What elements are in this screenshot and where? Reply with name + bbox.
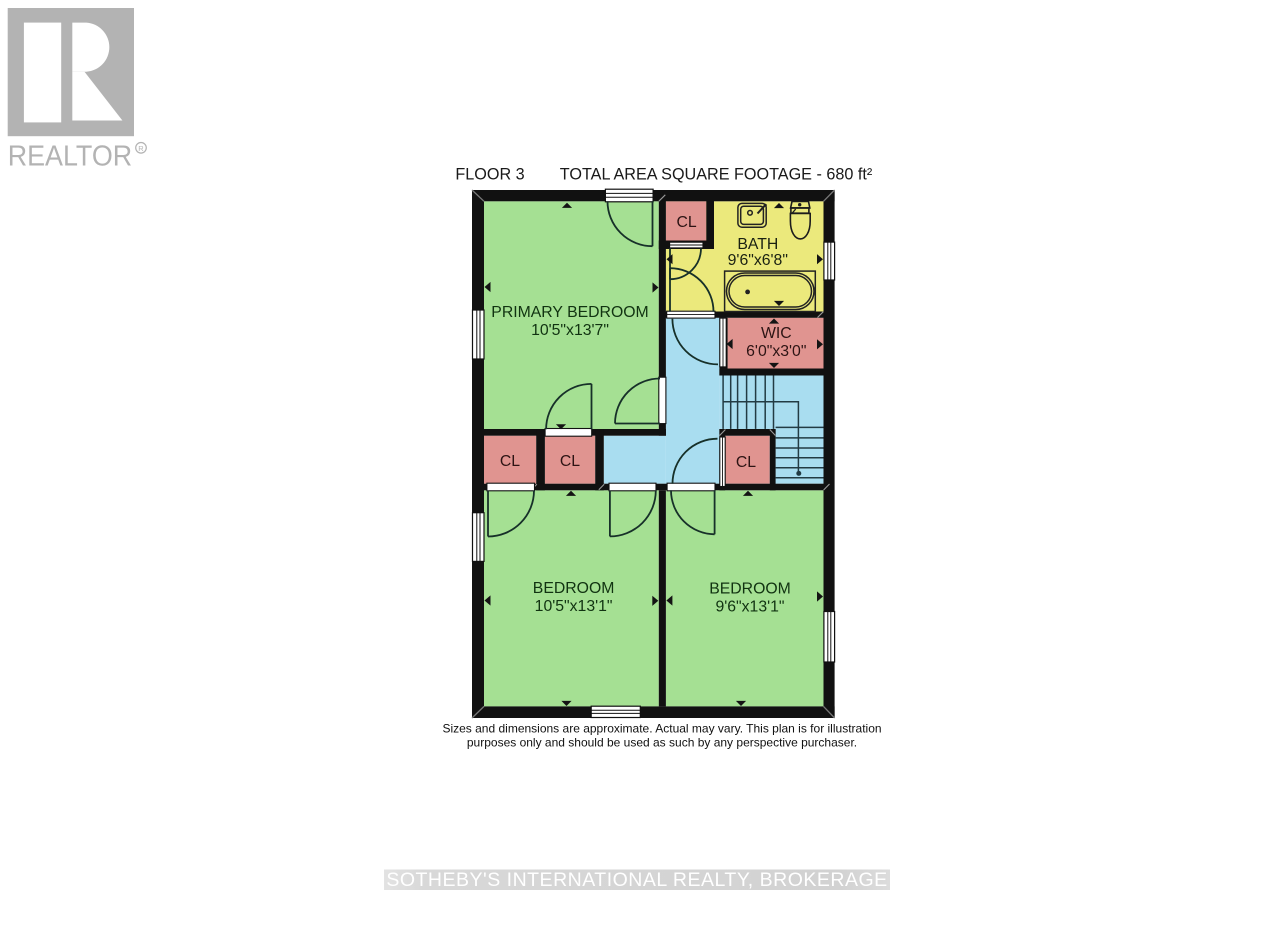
svg-text:BATH: BATH bbox=[737, 236, 778, 253]
svg-text:REALTOR: REALTOR bbox=[8, 140, 133, 172]
svg-text:Sizes and dimensions are appro: Sizes and dimensions are approximate. Ac… bbox=[442, 722, 881, 736]
svg-text:CL: CL bbox=[560, 453, 580, 470]
svg-text:9'6"x6'8": 9'6"x6'8" bbox=[728, 252, 788, 269]
svg-text:purposes only and should be us: purposes only and should be used as such… bbox=[467, 735, 857, 749]
svg-text:6'0"x3'0": 6'0"x3'0" bbox=[746, 343, 806, 360]
svg-text:PRIMARY BEDROOM: PRIMARY BEDROOM bbox=[491, 304, 648, 321]
svg-text:WIC: WIC bbox=[761, 325, 792, 342]
svg-text:10'5"x13'7": 10'5"x13'7" bbox=[531, 322, 609, 339]
svg-text:9'6"x13'1": 9'6"x13'1" bbox=[715, 599, 784, 616]
svg-text:SOTHEBY'S INTERNATIONAL REALTY: SOTHEBY'S INTERNATIONAL REALTY, BROKERAG… bbox=[386, 869, 887, 891]
svg-text:10'5"x13'1": 10'5"x13'1" bbox=[535, 598, 613, 615]
svg-text:BEDROOM: BEDROOM bbox=[533, 580, 615, 597]
svg-text:R: R bbox=[138, 144, 144, 153]
svg-text:BEDROOM: BEDROOM bbox=[709, 581, 791, 598]
svg-text:CL: CL bbox=[736, 454, 756, 471]
svg-text:CL: CL bbox=[676, 214, 696, 231]
svg-text:FLOOR 3: FLOOR 3 bbox=[455, 165, 524, 183]
svg-text:CL: CL bbox=[500, 453, 520, 470]
svg-text:TOTAL AREA SQUARE FOOTAGE - 68: TOTAL AREA SQUARE FOOTAGE - 680 ft² bbox=[560, 165, 873, 183]
